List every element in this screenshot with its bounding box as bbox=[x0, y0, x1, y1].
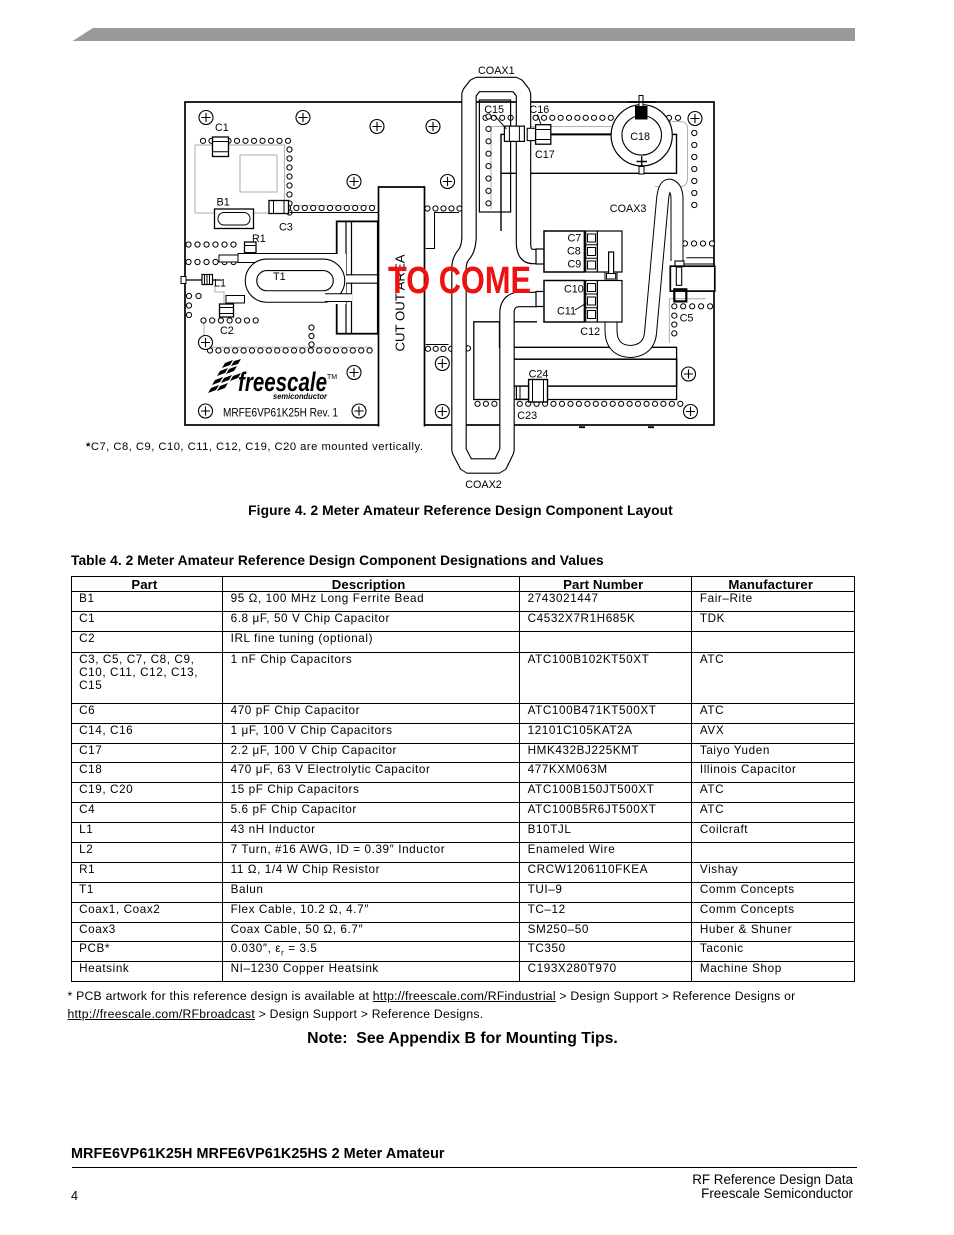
svg-text:R1: R1 bbox=[252, 233, 266, 245]
svg-text:COAX1: COAX1 bbox=[478, 65, 515, 77]
svg-text:C1: C1 bbox=[215, 122, 229, 134]
svg-text:C12: C12 bbox=[580, 326, 600, 338]
svg-text:C7: C7 bbox=[568, 233, 582, 245]
svg-text:C5: C5 bbox=[680, 313, 694, 325]
svg-text:C11: C11 bbox=[557, 305, 576, 317]
svg-text:C17: C17 bbox=[535, 149, 555, 161]
svg-text:C18: C18 bbox=[630, 131, 650, 143]
svg-text:MRFE6VP61K25H Rev. 1: MRFE6VP61K25H Rev. 1 bbox=[223, 408, 338, 420]
svg-text:COAX3: COAX3 bbox=[610, 203, 647, 215]
svg-text:TO COME: TO COME bbox=[388, 260, 531, 302]
svg-text:semiconductor: semiconductor bbox=[273, 391, 328, 401]
svg-text:TM: TM bbox=[327, 374, 337, 381]
svg-text:C9: C9 bbox=[568, 258, 582, 270]
svg-text:C3: C3 bbox=[279, 222, 293, 234]
svg-text:L1: L1 bbox=[214, 278, 226, 290]
svg-text:B1: B1 bbox=[217, 197, 230, 209]
svg-text:C2: C2 bbox=[220, 325, 234, 337]
svg-text:C15: C15 bbox=[484, 104, 504, 116]
svg-text:COAX2: COAX2 bbox=[465, 479, 502, 491]
svg-text:C24: C24 bbox=[529, 369, 549, 381]
svg-text:C8: C8 bbox=[567, 246, 581, 258]
svg-text:C23: C23 bbox=[517, 410, 537, 422]
svg-text:C16: C16 bbox=[529, 104, 549, 116]
svg-text:T1: T1 bbox=[273, 271, 286, 283]
svg-text:C10: C10 bbox=[564, 284, 584, 296]
